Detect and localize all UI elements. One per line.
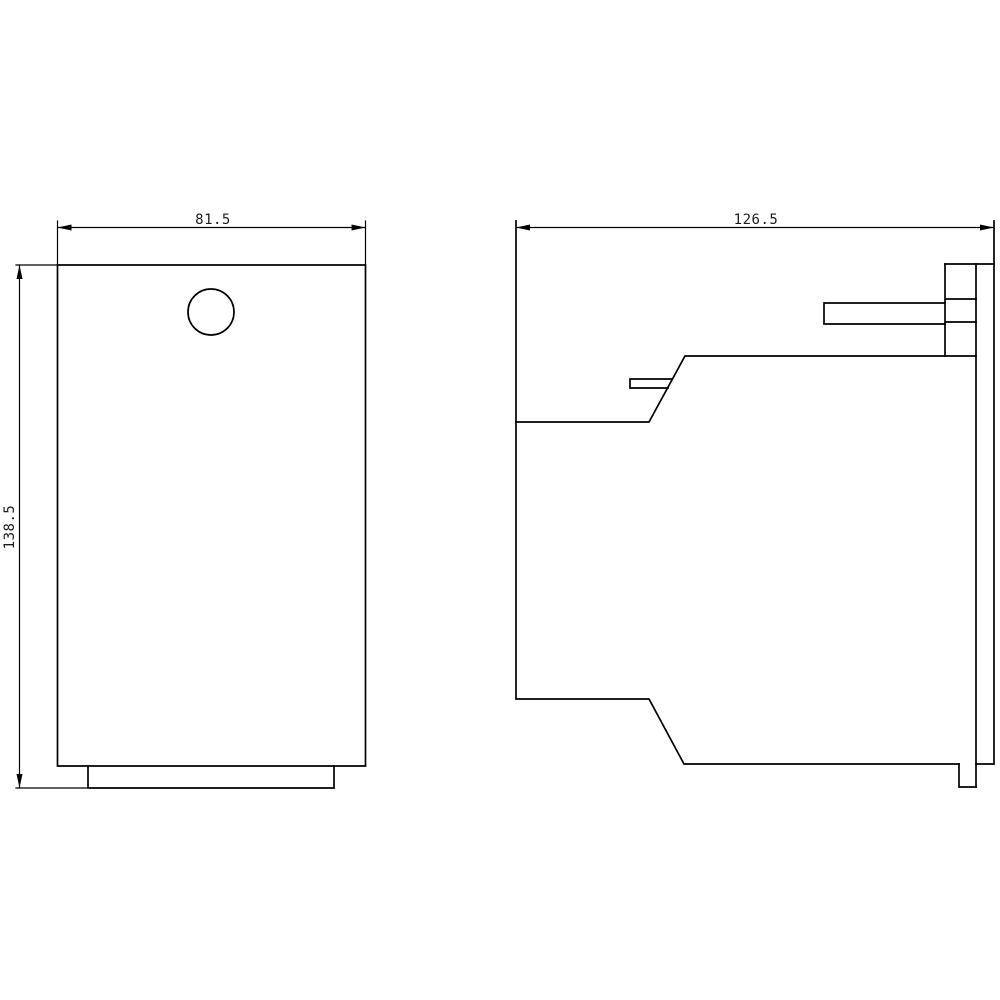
front-width-dimension-label: 81.5 — [195, 212, 231, 228]
terminal-stack — [945, 264, 976, 356]
arrowhead-right — [980, 225, 994, 231]
front-view-outline — [58, 265, 366, 766]
arrowhead-right — [352, 225, 366, 231]
snap-tab — [630, 379, 672, 388]
side-view-top-profile — [516, 356, 976, 422]
front-height-dimension-label: 138.5 — [2, 505, 18, 550]
front-width-dimension: 81.5 — [58, 212, 366, 265]
side-depth-dimension-label: 126.5 — [734, 212, 779, 228]
arrowhead-top — [17, 265, 23, 279]
arrowhead-left — [516, 225, 530, 231]
front-view — [58, 265, 366, 788]
dimension-drawing-canvas: 81.5 138.5 126.5 — [0, 0, 1000, 1000]
side-view-foot-notch — [959, 764, 976, 787]
front-height-dimension: 138.5 — [2, 265, 88, 788]
front-view-foot — [88, 766, 334, 788]
arrowhead-left — [58, 225, 72, 231]
side-view-right-edge — [976, 221, 994, 764]
arrowhead-bottom — [17, 774, 23, 788]
side-view — [516, 221, 994, 787]
dimension-drawing-page: 81.5 138.5 126.5 — [0, 0, 1000, 1000]
terminal-bar — [824, 303, 945, 324]
side-depth-dimension: 126.5 — [516, 212, 994, 231]
selector-knob-circle — [188, 289, 234, 335]
